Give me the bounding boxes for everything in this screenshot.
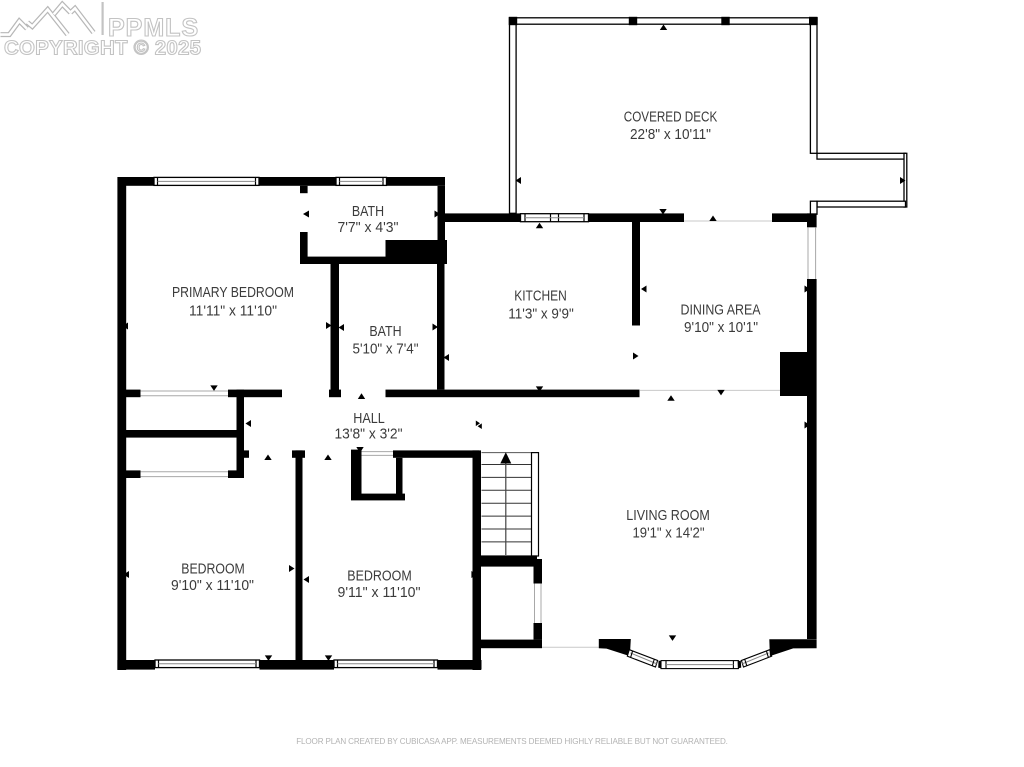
svg-text:HALL: HALL [353, 410, 385, 427]
svg-text:DINING AREA: DINING AREA [681, 302, 761, 319]
svg-text:PRIMARY BEDROOM: PRIMARY BEDROOM [172, 284, 294, 301]
svg-text:COPYRIGHT © 2025: COPYRIGHT © 2025 [4, 37, 201, 60]
svg-text:BEDROOM: BEDROOM [181, 561, 245, 578]
svg-text:9'10" x 11'10": 9'10" x 11'10" [171, 577, 254, 594]
svg-text:COVERED DECK: COVERED DECK [624, 109, 718, 126]
svg-text:KITCHEN: KITCHEN [514, 288, 567, 305]
svg-text:LIVING ROOM: LIVING ROOM [626, 507, 710, 524]
svg-text:11'3" x 9'9": 11'3" x 9'9" [508, 306, 574, 323]
svg-text:7'7" x 4'3": 7'7" x 4'3" [338, 219, 399, 236]
svg-text:11'11" x 11'10": 11'11" x 11'10" [189, 303, 277, 320]
svg-text:13'8" x 3'2": 13'8" x 3'2" [335, 426, 403, 443]
svg-text:5'10" x 7'4": 5'10" x 7'4" [353, 341, 419, 358]
svg-text:BATH: BATH [352, 203, 384, 220]
svg-text:9'10" x 10'1": 9'10" x 10'1" [684, 319, 758, 336]
svg-text:BATH: BATH [369, 323, 401, 340]
svg-text:22'8" x 10'11": 22'8" x 10'11" [630, 126, 711, 143]
svg-text:9'11" x 11'10": 9'11" x 11'10" [338, 584, 421, 601]
svg-text:FLOOR PLAN CREATED BY CUBICASA: FLOOR PLAN CREATED BY CUBICASA APP. MEAS… [296, 737, 727, 746]
svg-text:19'1" x 14'2": 19'1" x 14'2" [633, 525, 705, 542]
svg-text:BEDROOM: BEDROOM [347, 568, 412, 585]
